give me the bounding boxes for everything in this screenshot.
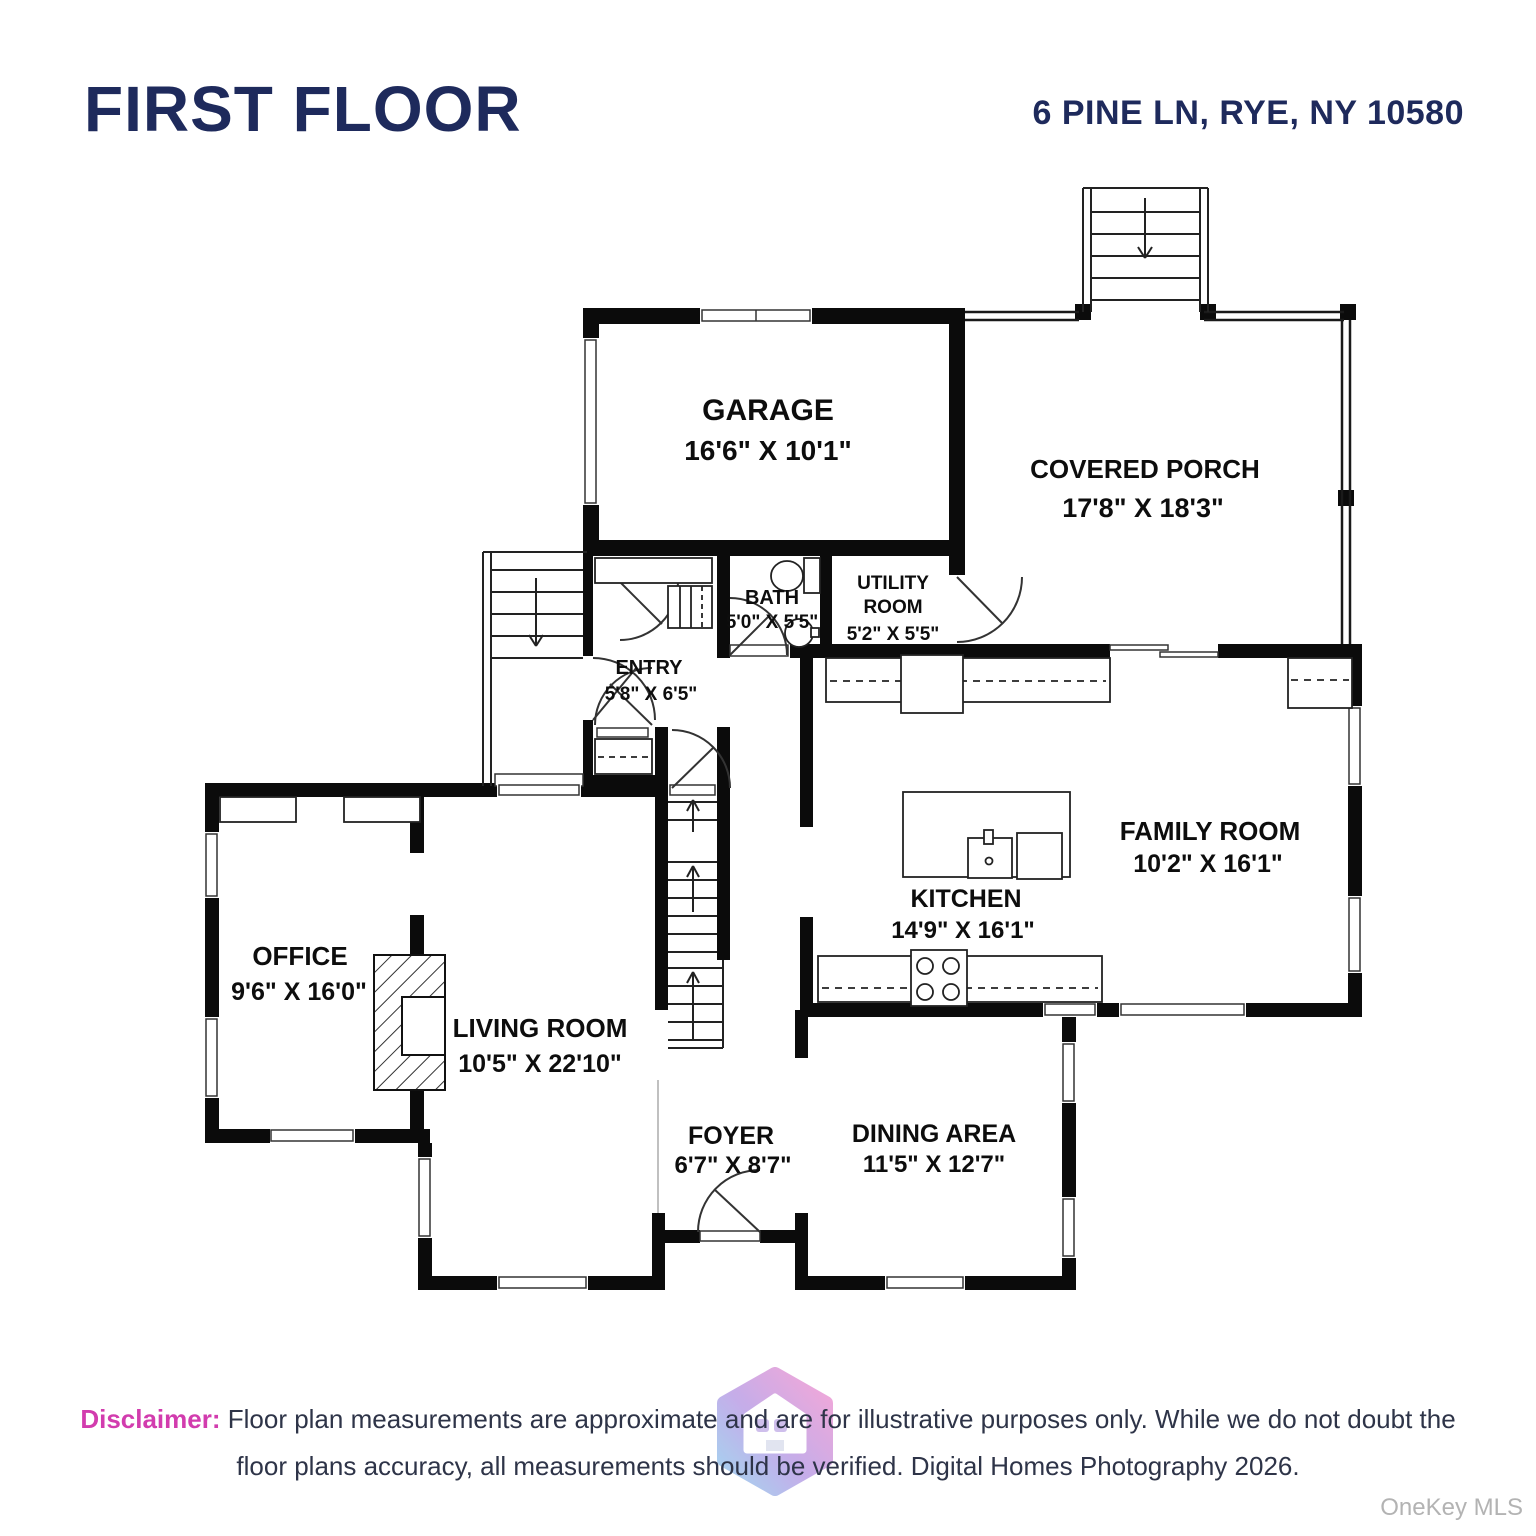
room-label-dining: DINING AREA xyxy=(852,1120,1016,1148)
disclaimer-line1: Disclaimer: Floor plan measurements are … xyxy=(60,1396,1476,1443)
disclaimer-label: Disclaimer: xyxy=(80,1404,220,1434)
room-label-family: FAMILY ROOM xyxy=(1120,816,1301,846)
room-dims-utility: 5'2" X 5'5" xyxy=(847,624,940,645)
disclaimer-text-2: floor plans accuracy, all measurements s… xyxy=(60,1443,1476,1490)
entry-deck-stairs xyxy=(483,552,587,786)
onekey-mls-watermark: OneKey MLS xyxy=(1380,1494,1523,1522)
disclaimer-text-1: Floor plan measurements are approximate … xyxy=(228,1404,1456,1434)
room-dims-office: 9'6" X 16'0" xyxy=(231,978,367,1006)
porch-stairs xyxy=(1083,188,1208,312)
central-staircase xyxy=(668,800,723,1048)
room-label-garage: GARAGE xyxy=(702,394,834,427)
room-label-kitchen: KITCHEN xyxy=(910,885,1021,913)
room-dims-living: 10'5" X 22'10" xyxy=(458,1050,622,1078)
disclaimer: Disclaimer: Floor plan measurements are … xyxy=(60,1396,1476,1490)
room-label-foyer: FOYER xyxy=(688,1122,774,1150)
room-dims-foyer: 6'7" X 8'7" xyxy=(675,1152,792,1179)
room-dims-kitchen: 14'9" X 16'1" xyxy=(891,917,1035,944)
floor-plan-page: FIRST FLOOR 6 PINE LN, RYE, NY 10580 xyxy=(0,0,1536,1536)
room-dims-bath: 5'0" X 5'5" xyxy=(726,612,819,633)
room-label-entry: ENTRY xyxy=(615,657,683,679)
floor-plan-drawing: GARAGE 16'6" X 10'1" COVERED PORCH 17'8"… xyxy=(0,0,1536,1536)
room-dims-covered-porch: 17'8" X 18'3" xyxy=(1062,493,1224,523)
room-label-utility-1: UTILITY xyxy=(857,573,929,594)
room-dims-entry: 5'8" X 6'5" xyxy=(605,684,698,705)
room-dims-garage: 16'6" X 10'1" xyxy=(684,435,852,466)
room-label-living: LIVING ROOM xyxy=(453,1013,628,1043)
room-dims-dining: 11'5" X 12'7" xyxy=(863,1151,1005,1178)
room-label-bath: BATH xyxy=(745,587,799,609)
room-dims-family: 10'2" X 16'1" xyxy=(1133,850,1283,878)
room-label-covered-porch: COVERED PORCH xyxy=(1030,454,1260,484)
room-label-office: OFFICE xyxy=(252,941,347,971)
room-label-utility-2: ROOM xyxy=(863,597,922,618)
